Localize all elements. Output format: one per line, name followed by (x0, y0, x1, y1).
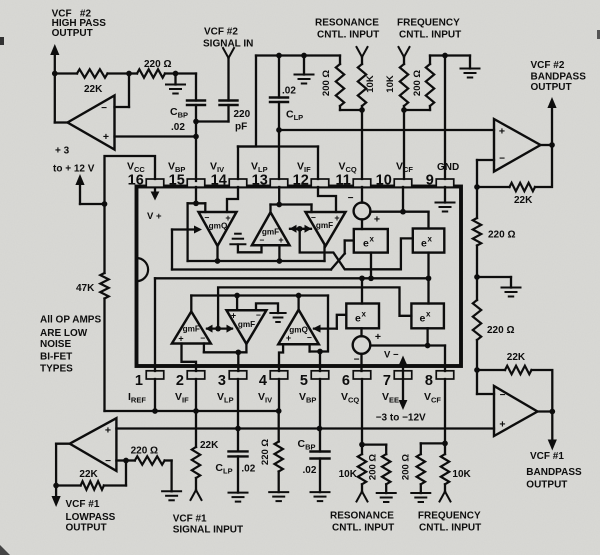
svg-text:10K: 10K (452, 469, 471, 480)
svg-text:5: 5 (300, 373, 308, 389)
svg-text:BANDPASS: BANDPASS (531, 72, 587, 83)
svg-text:200 Ω: 200 Ω (412, 70, 423, 96)
svg-text:14: 14 (211, 173, 227, 189)
svg-text:gmQ: gmQ (289, 326, 308, 335)
svg-text:220 Ω: 220 Ω (487, 325, 514, 336)
svg-text:10K: 10K (339, 469, 358, 480)
svg-text:SIGNAL INPUT: SIGNAL INPUT (173, 525, 243, 536)
svg-text:e: e (421, 238, 427, 250)
svg-text:−: − (348, 193, 354, 204)
svg-text:−: − (256, 310, 261, 320)
svg-text:8: 8 (425, 373, 433, 389)
svg-text:x: x (362, 310, 367, 319)
svg-text:SIGNAL IN: SIGNAL IN (203, 39, 253, 50)
svg-text:+: + (375, 331, 381, 343)
svg-text:+: + (178, 333, 183, 343)
svg-text:.02: .02 (241, 464, 255, 475)
svg-text:+: + (334, 213, 339, 223)
svg-text:VCF #1: VCF #1 (530, 451, 564, 462)
svg-text:22K: 22K (507, 352, 526, 363)
svg-text:−: − (260, 235, 265, 245)
svg-text:VCF #1: VCF #1 (173, 514, 207, 525)
svg-text:−: − (499, 154, 505, 165)
svg-text:1: 1 (135, 373, 143, 389)
svg-text:V −: V − (384, 350, 399, 361)
svg-text:e: e (355, 313, 361, 325)
svg-text:+: + (499, 126, 505, 138)
svg-text:3: 3 (218, 373, 226, 389)
svg-text:gmF: gmF (316, 221, 333, 230)
svg-text:−: − (500, 390, 506, 401)
svg-text:x: x (426, 310, 431, 319)
svg-text:RESONANCE: RESONANCE (315, 18, 379, 29)
svg-text:−: − (307, 333, 312, 343)
svg-text:to + 12 V: to + 12 V (53, 164, 95, 175)
svg-text:4: 4 (259, 373, 267, 389)
svg-text:+: + (231, 311, 236, 321)
svg-text:2: 2 (176, 373, 184, 389)
svg-text:.02: .02 (171, 122, 185, 133)
svg-text:6: 6 (342, 373, 350, 389)
svg-text:9: 9 (426, 173, 434, 189)
svg-text:LOWPASS: LOWPASS (66, 512, 116, 523)
svg-text:47K: 47K (76, 283, 95, 294)
svg-text:RESONANCE: RESONANCE (330, 511, 394, 522)
svg-text:FREQUENCY: FREQUENCY (418, 511, 481, 522)
svg-text:GND: GND (437, 162, 459, 173)
svg-text:−: − (311, 213, 316, 223)
svg-text:+ 3: + 3 (55, 146, 70, 157)
svg-text:16: 16 (128, 173, 144, 189)
svg-text:VCF #2: VCF #2 (531, 60, 565, 71)
svg-text:11: 11 (335, 173, 350, 189)
svg-text:22K: 22K (84, 84, 103, 95)
svg-text:CNTL. INPUT: CNTL. INPUT (399, 30, 461, 41)
svg-text:OUTPUT: OUTPUT (52, 28, 93, 39)
svg-text:.02: .02 (282, 86, 296, 97)
svg-text:gmF: gmF (183, 325, 200, 334)
svg-text:−: − (200, 333, 205, 343)
svg-text:+: + (286, 333, 291, 343)
svg-text:10K: 10K (365, 75, 376, 93)
svg-text:+: + (225, 213, 230, 223)
svg-text:10: 10 (376, 173, 392, 189)
svg-text:pF: pF (235, 122, 247, 133)
svg-text:+: + (278, 235, 283, 245)
svg-text:TYPES: TYPES (40, 364, 73, 375)
svg-text:200 Ω: 200 Ω (401, 454, 412, 480)
svg-text:+: + (374, 214, 380, 226)
svg-text:+: + (103, 131, 109, 143)
svg-text:FREQUENCY: FREQUENCY (397, 18, 460, 29)
svg-text:x: x (370, 235, 375, 244)
svg-text:BI-FET: BI-FET (40, 352, 72, 363)
svg-text:22K: 22K (79, 469, 98, 480)
svg-text:VCF #2: VCF #2 (204, 27, 238, 38)
svg-text:13: 13 (252, 173, 268, 189)
svg-text:CNTL. INPUT: CNTL. INPUT (332, 523, 394, 534)
svg-text:22K: 22K (514, 195, 533, 206)
svg-text:V +: V + (147, 211, 162, 222)
svg-text:22K: 22K (200, 440, 219, 451)
svg-text:BANDPASS: BANDPASS (526, 467, 582, 478)
svg-text:All OP AMPS: All OP AMPS (40, 315, 101, 326)
svg-text:CNTL. INPUT: CNTL. INPUT (317, 30, 379, 41)
svg-text:NOISE: NOISE (40, 339, 71, 350)
svg-text:220 Ω: 220 Ω (144, 59, 171, 70)
svg-text:OUTPUT: OUTPUT (66, 523, 107, 534)
svg-text:gmF: gmF (238, 320, 255, 329)
svg-text:e: e (363, 238, 369, 250)
svg-text:CNTL. INPUT: CNTL. INPUT (419, 523, 481, 534)
svg-text:−: − (354, 355, 360, 366)
svg-text:e: e (420, 313, 426, 325)
svg-text:12: 12 (293, 173, 309, 189)
svg-text:−: − (105, 456, 111, 467)
svg-text:10K: 10K (385, 75, 396, 93)
svg-text:200 Ω: 200 Ω (321, 70, 332, 96)
svg-text:200 Ω: 200 Ω (367, 454, 378, 480)
svg-text:15: 15 (169, 173, 185, 189)
svg-text:220 Ω: 220 Ω (260, 439, 271, 465)
svg-text:VCF #1: VCF #1 (66, 499, 100, 510)
svg-text:OUTPUT: OUTPUT (531, 82, 572, 93)
svg-text:220 Ω: 220 Ω (488, 230, 515, 241)
svg-text:−: − (101, 103, 107, 114)
svg-text:−3 to −12V: −3 to −12V (376, 413, 426, 424)
svg-text:ARE LOW: ARE LOW (40, 328, 88, 339)
svg-text:220 Ω: 220 Ω (131, 446, 158, 457)
svg-text:OUTPUT: OUTPUT (526, 480, 567, 491)
svg-text:−: − (205, 213, 210, 223)
svg-text:x: x (428, 235, 433, 244)
svg-text:.02: .02 (303, 465, 317, 476)
svg-text:220: 220 (234, 109, 251, 120)
svg-text:+: + (105, 425, 111, 437)
svg-text:7: 7 (383, 373, 391, 389)
svg-text:+: + (499, 419, 505, 431)
